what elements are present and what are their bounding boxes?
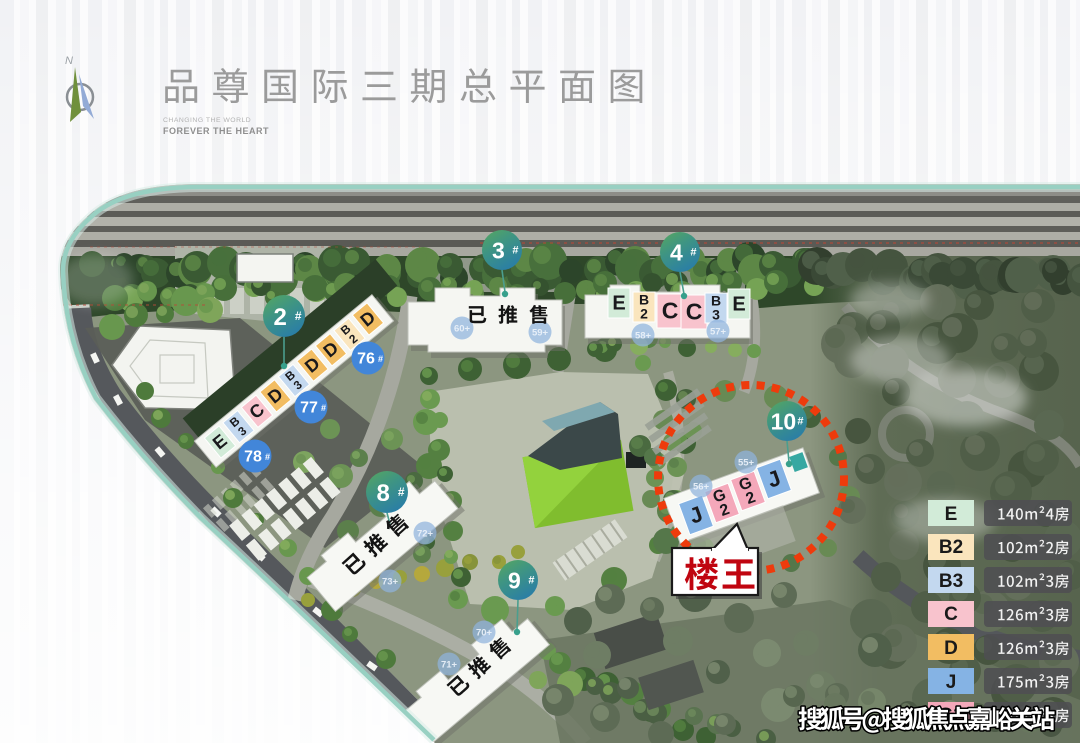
svg-text:D: D	[944, 638, 958, 659]
svg-text:N: N	[65, 55, 73, 67]
svg-text:J: J	[946, 672, 957, 693]
svg-text:55+: 55+	[738, 458, 755, 469]
svg-text:CHANGING THE WORLD: CHANGING THE WORLD	[163, 117, 251, 124]
svg-text:#: #	[528, 575, 534, 587]
svg-text:2: 2	[274, 304, 287, 331]
svg-text:8: 8	[377, 480, 390, 507]
svg-text:72+: 72+	[417, 529, 434, 540]
svg-text:60+: 60+	[454, 324, 471, 335]
svg-text:#: #	[512, 245, 518, 257]
svg-text:71+: 71+	[441, 660, 458, 671]
svg-text:E: E	[732, 294, 745, 316]
svg-text:2: 2	[640, 305, 648, 321]
svg-text:#: #	[797, 416, 803, 428]
svg-text:C: C	[686, 299, 703, 325]
svg-text:E: E	[612, 293, 625, 315]
svg-text:FOREVER THE HEART: FOREVER THE HEART	[163, 126, 269, 136]
svg-text:73+: 73+	[382, 577, 399, 588]
svg-text:C: C	[662, 298, 679, 324]
svg-text:#: #	[398, 485, 405, 499]
svg-text:77: 77	[300, 400, 318, 417]
svg-text:#: #	[690, 247, 696, 259]
svg-text:10: 10	[771, 408, 797, 434]
svg-text:3: 3	[492, 237, 505, 263]
svg-text:#: #	[378, 354, 383, 364]
svg-text:#: #	[265, 452, 270, 462]
svg-text:#: #	[321, 403, 326, 413]
svg-text:76: 76	[357, 351, 375, 368]
svg-text:78: 78	[244, 449, 262, 466]
svg-text:59+: 59+	[532, 328, 549, 339]
svg-text:9: 9	[508, 567, 521, 593]
svg-text:#: #	[295, 309, 302, 323]
svg-text:4: 4	[670, 239, 683, 265]
svg-text:B3: B3	[939, 571, 963, 592]
svg-text:56+: 56+	[693, 482, 710, 493]
svg-text:70+: 70+	[476, 628, 493, 639]
svg-text:58+: 58+	[635, 331, 652, 342]
svg-text:C: C	[944, 604, 958, 625]
svg-text:B2: B2	[939, 537, 963, 558]
svg-text:57+: 57+	[710, 327, 727, 338]
svg-text:E: E	[945, 504, 958, 525]
